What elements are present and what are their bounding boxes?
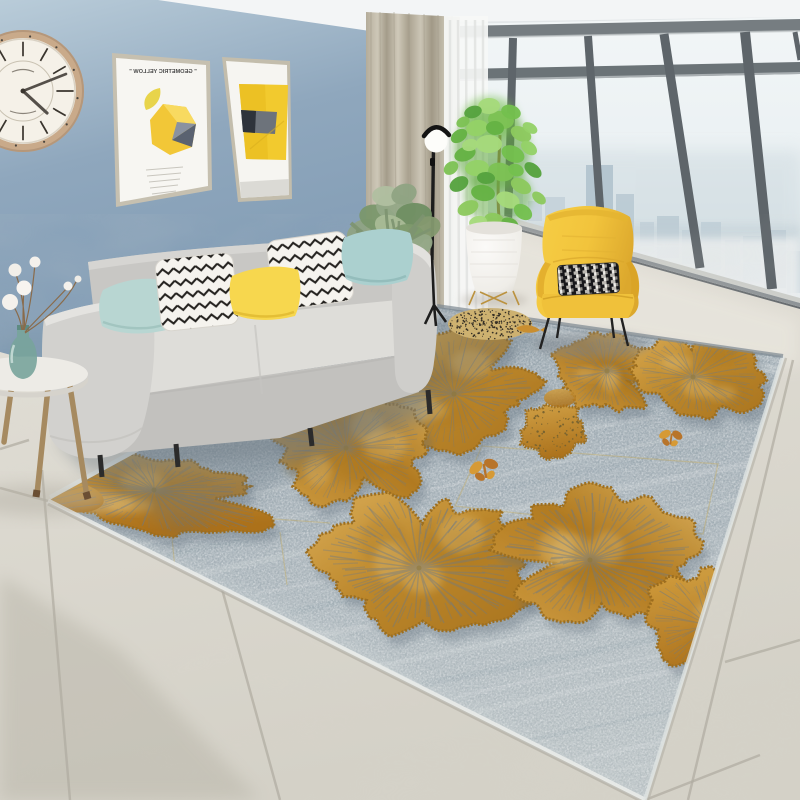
svg-text:" GEOMETRIC YELLOW ": " GEOMETRIC YELLOW " [129, 69, 197, 75]
